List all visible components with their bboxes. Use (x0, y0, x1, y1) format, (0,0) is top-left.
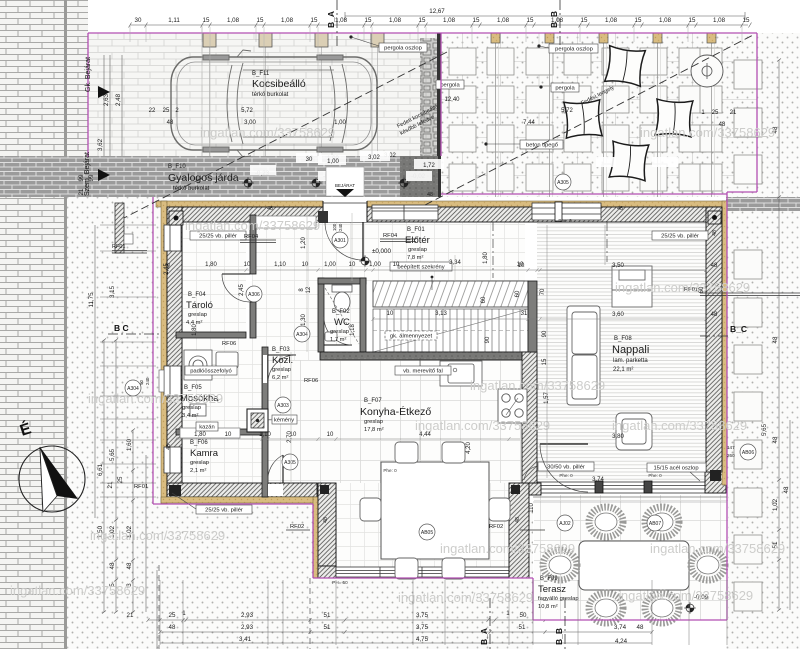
svg-text:48: 48 (166, 263, 172, 269)
svg-text:147: 147 (727, 445, 735, 450)
svg-text:10: 10 (393, 262, 400, 268)
svg-text:10: 10 (244, 262, 251, 268)
svg-text:±0,000: ±0,000 (372, 248, 391, 255)
svg-text:RF04: RF04 (383, 233, 398, 239)
svg-text:260: 260 (727, 453, 735, 458)
svg-text:48: 48 (617, 206, 623, 212)
svg-text:B_B: B_B (554, 628, 564, 645)
svg-text:pergola oszlop: pergola oszlop (384, 46, 422, 52)
svg-text:B_F11: B_F11 (252, 71, 270, 77)
svg-text:21: 21 (730, 110, 737, 116)
svg-text:B_A: B_A (326, 11, 336, 28)
svg-text:60: 60 (699, 286, 705, 293)
svg-text:RF01: RF01 (134, 484, 148, 490)
svg-text:3,4 m²: 3,4 m² (182, 413, 198, 419)
svg-text:48: 48 (267, 206, 273, 212)
svg-text:25: 25 (163, 108, 170, 114)
svg-text:15: 15 (419, 17, 426, 24)
svg-text:1,80: 1,80 (194, 432, 206, 438)
svg-text:21: 21 (107, 481, 114, 488)
svg-text:51: 51 (324, 612, 331, 619)
svg-text:ingatlan.com/33758629: ingatlan.com/33758629 (200, 125, 335, 140)
svg-text:1,10: 1,10 (259, 432, 271, 438)
svg-text:ingatlan.com/33758629: ingatlan.com/33758629 (440, 541, 575, 556)
svg-text:10: 10 (387, 311, 394, 317)
svg-text:48: 48 (637, 624, 644, 631)
svg-text:48: 48 (126, 562, 133, 569)
svg-text:pergola oszlop: pergola oszlop (555, 47, 593, 53)
svg-text:1,11: 1,11 (168, 17, 180, 24)
svg-text:A306: A306 (248, 292, 260, 298)
svg-text:B_F01: B_F01 (407, 227, 425, 233)
svg-text:4,44: 4,44 (419, 432, 431, 438)
svg-text:A303: A303 (277, 403, 289, 409)
svg-text:48: 48 (719, 122, 726, 128)
svg-text:B_B: B_B (549, 11, 559, 28)
svg-text:1,60: 1,60 (126, 438, 133, 451)
svg-text:greslap: greslap (272, 367, 291, 373)
svg-text:ingatlan.com/33758629: ingatlan.com/33758629 (612, 418, 747, 433)
svg-text:AJ02: AJ02 (559, 521, 571, 527)
svg-text:60: 60 (515, 290, 521, 297)
svg-text:1,80: 1,80 (483, 252, 489, 264)
svg-text:48: 48 (109, 562, 116, 569)
svg-text:padlóösszefolyó: padlóösszefolyó (190, 369, 232, 375)
svg-text:30/50 vb. pillér: 30/50 vb. pillér (547, 465, 585, 471)
svg-text:5,72: 5,72 (241, 108, 253, 114)
svg-text:25: 25 (169, 612, 176, 619)
svg-text:B_F03: B_F03 (272, 347, 290, 353)
svg-text:60: 60 (481, 296, 487, 303)
svg-text:RF04: RF04 (244, 234, 259, 240)
svg-text:greslap: greslap (188, 312, 207, 318)
svg-text:ingatlan.com/33758629: ingatlan.com/33758629 (650, 541, 785, 556)
svg-text:1,18: 1,18 (350, 324, 356, 336)
svg-text:gk. álmennyezet: gk. álmennyezet (390, 334, 433, 340)
svg-text:1,08: 1,08 (389, 17, 402, 24)
svg-text:B_C: B_C (730, 324, 747, 334)
svg-text:B_F10: B_F10 (168, 164, 186, 170)
svg-text:ingatlan.com/33758629: ingatlan.com/33758629 (415, 418, 550, 433)
svg-text:pergola: pergola (440, 83, 460, 89)
svg-text:15: 15 (311, 17, 318, 24)
svg-text:kazán: kazán (199, 425, 214, 431)
svg-text:térkő burkolat: térkő burkolat (252, 92, 289, 98)
svg-text:6,2 m²: 6,2 m² (272, 375, 288, 381)
svg-text:RF02: RF02 (290, 524, 304, 530)
svg-text:25/25 vb. pillér: 25/25 vb. pillér (199, 234, 237, 240)
svg-text:48: 48 (427, 192, 433, 198)
svg-text:1,20: 1,20 (301, 237, 307, 249)
svg-text:1,80: 1,80 (192, 324, 198, 336)
svg-text:3,60: 3,60 (612, 312, 624, 318)
svg-text:pergola: pergola (555, 86, 575, 92)
svg-text:1,80: 1,80 (205, 262, 217, 268)
svg-text:Phe: 0: Phe: 0 (648, 473, 662, 478)
svg-text:1,08: 1,08 (659, 17, 672, 24)
svg-text:48: 48 (515, 517, 521, 523)
svg-text:10: 10 (225, 432, 232, 438)
svg-text:25/25 vb. pillér: 25/25 vb. pillér (205, 508, 243, 514)
svg-text:ingatlan.com/33758629: ingatlan.com/33758629 (398, 590, 533, 605)
svg-text:1,08: 1,08 (605, 17, 618, 24)
svg-text:3,75: 3,75 (416, 624, 429, 631)
svg-text:B_F07: B_F07 (364, 398, 382, 404)
svg-text:ingatlan.com/33758629: ingatlan.com/33758629 (185, 218, 320, 233)
svg-text:beton tipegő: beton tipegő (526, 143, 558, 149)
svg-text:48: 48 (711, 312, 718, 318)
svg-text:48: 48 (772, 436, 779, 443)
svg-text:15: 15 (581, 17, 588, 24)
svg-text:30: 30 (306, 157, 313, 163)
svg-text:110: 110 (529, 503, 535, 513)
svg-text:1,7 m²: 1,7 m² (330, 337, 346, 343)
svg-text:Gyalogos járda: Gyalogos járda (168, 172, 239, 184)
svg-text:2,1 m²: 2,1 m² (190, 468, 206, 474)
svg-text:10: 10 (518, 263, 525, 269)
svg-text:3,00: 3,00 (244, 120, 256, 126)
svg-text:ingatlan.com/33758629: ingatlan.com/33758629 (615, 280, 750, 295)
svg-text:A301: A301 (334, 238, 346, 244)
svg-text:25: 25 (712, 110, 719, 116)
svg-text:RF01: RF01 (112, 244, 125, 250)
svg-text:22,1 m²: 22,1 m² (613, 367, 633, 373)
svg-text:AB07: AB07 (649, 521, 661, 527)
svg-text:Phe: 0: Phe: 0 (559, 473, 573, 478)
svg-text:Kamra: Kamra (190, 448, 219, 459)
svg-text:15: 15 (527, 17, 534, 24)
svg-text:4,24: 4,24 (615, 638, 628, 645)
svg-text:B_F04: B_F04 (188, 292, 206, 298)
svg-text:90: 90 (485, 336, 491, 343)
svg-text:Szem. Bejárat: Szem. Bejárat (84, 152, 91, 196)
svg-text:A305: A305 (557, 180, 569, 186)
svg-text:1,30: 1,30 (301, 314, 307, 326)
svg-text:2,63: 2,63 (103, 93, 110, 106)
svg-text:ingatlan.com/33758629: ingatlan.com/33758629 (90, 528, 225, 543)
svg-text:RF02: RF02 (489, 524, 503, 530)
svg-text:15/15 acél oszlop: 15/15 acél oszlop (653, 466, 698, 472)
svg-text:21: 21 (127, 612, 134, 619)
svg-text:B_F06: B_F06 (190, 440, 208, 446)
svg-text:7,8 m²: 7,8 m² (407, 255, 423, 261)
svg-text:12,67: 12,67 (429, 8, 445, 15)
svg-text:A304: A304 (296, 332, 308, 338)
svg-text:15: 15 (473, 17, 480, 24)
svg-text:1,08: 1,08 (281, 17, 294, 24)
svg-text:50: 50 (520, 612, 527, 619)
svg-text:4,75: 4,75 (416, 636, 429, 643)
svg-text:PH= 50: PH= 50 (332, 580, 348, 585)
svg-text:3,74: 3,74 (614, 624, 627, 631)
svg-text:48: 48 (167, 120, 174, 126)
svg-text:vb. merevítő fal: vb. merevítő fal (403, 369, 443, 375)
svg-text:Nappali: Nappali (612, 344, 649, 356)
svg-text:25/25 vb. pillér: 25/25 vb. pillér (661, 234, 699, 240)
svg-text:25: 25 (117, 476, 124, 483)
svg-text:10: 10 (349, 262, 356, 268)
svg-text:3,80: 3,80 (612, 434, 624, 440)
svg-text:12,40: 12,40 (444, 97, 460, 103)
svg-text:48: 48 (323, 517, 329, 523)
svg-text:3,62: 3,62 (97, 138, 104, 151)
svg-text:15: 15 (257, 17, 264, 24)
svg-text:51: 51 (324, 624, 331, 631)
svg-text:15: 15 (635, 17, 642, 24)
svg-text:2,70: 2,70 (287, 431, 293, 443)
svg-text:Konyha-Étkező: Konyha-Étkező (360, 405, 431, 418)
svg-text:48: 48 (712, 230, 718, 236)
svg-text:beépített szekrény: beépített szekrény (397, 265, 444, 271)
svg-text:22: 22 (149, 108, 156, 114)
svg-text:1,08: 1,08 (443, 17, 456, 24)
svg-text:B C: B C (114, 323, 129, 333)
svg-text:AB05: AB05 (421, 530, 433, 536)
svg-text:greslap: greslap (190, 460, 209, 466)
svg-text:51: 51 (519, 624, 526, 631)
svg-text:7,44: 7,44 (523, 120, 535, 126)
svg-text:100: 100 (332, 223, 337, 231)
svg-text:240: 240 (145, 377, 150, 385)
svg-text:17,8 m²: 17,8 m² (364, 427, 384, 433)
svg-text:4,20: 4,20 (466, 442, 472, 454)
svg-text:Előtér: Előtér (405, 235, 430, 246)
svg-text:10: 10 (327, 432, 334, 438)
svg-text:31: 31 (521, 311, 528, 317)
svg-text:B_F09: B_F09 (540, 576, 558, 582)
svg-text:3,75: 3,75 (416, 612, 429, 619)
svg-text:3,41: 3,41 (239, 636, 252, 643)
svg-text:B_F08: B_F08 (614, 336, 632, 342)
svg-text:1,08: 1,08 (227, 17, 240, 24)
svg-text:48: 48 (772, 336, 779, 343)
svg-text:48: 48 (711, 263, 718, 269)
svg-text:2,48: 2,48 (115, 93, 122, 106)
svg-text:1,00: 1,00 (334, 120, 346, 126)
svg-text:Phe: 0: Phe: 0 (383, 468, 397, 473)
svg-text:ingatlan.com/33758629: ingatlan.com/33758629 (640, 125, 775, 140)
svg-text:greslap: greslap (330, 329, 349, 335)
svg-text:ingatlan.com/33758629: ingatlan.com/33758629 (618, 588, 753, 603)
svg-text:B_A: B_A (479, 628, 489, 645)
svg-text:1,08: 1,08 (497, 17, 510, 24)
svg-text:3,02: 3,02 (368, 155, 380, 161)
svg-text:15: 15 (203, 17, 210, 24)
svg-text:AB06: AB06 (742, 450, 754, 456)
svg-text:1,72: 1,72 (423, 163, 435, 169)
svg-text:greslap: greslap (364, 419, 383, 425)
svg-text:48: 48 (169, 624, 176, 631)
svg-text:15: 15 (689, 17, 696, 24)
svg-text:5,72: 5,72 (561, 108, 573, 114)
svg-text:1,08: 1,08 (713, 17, 726, 24)
svg-text:90: 90 (139, 380, 144, 385)
svg-text:1,00: 1,00 (324, 262, 336, 268)
svg-text:2,93: 2,93 (241, 624, 254, 631)
svg-text:1,10: 1,10 (274, 262, 286, 268)
svg-text:3,74: 3,74 (592, 477, 604, 483)
svg-text:2,45: 2,45 (239, 284, 245, 296)
svg-text:A305: A305 (284, 460, 296, 466)
svg-text:5,65: 5,65 (761, 423, 768, 436)
svg-text:Tároló: Tároló (186, 300, 213, 311)
svg-text:10,8 m²: 10,8 m² (538, 604, 558, 610)
svg-text:térkő burkolat: térkő burkolat (173, 186, 210, 192)
svg-text:1,02: 1,02 (772, 498, 779, 511)
svg-text:5,65: 5,65 (109, 448, 116, 461)
svg-text:fagyálló greslap: fagyálló greslap (538, 596, 579, 602)
svg-text:BEJÁRAT: BEJÁRAT (335, 182, 355, 188)
svg-text:RF06: RF06 (222, 341, 236, 347)
svg-text:3,34: 3,34 (449, 260, 461, 266)
svg-text:ingatlan.com/33758629: ingatlan.com/33758629 (470, 378, 605, 393)
svg-text:Phe: 0: Phe: 0 (558, 218, 572, 223)
svg-text:Közl.: Közl. (272, 355, 293, 366)
svg-text:11,75: 11,75 (88, 292, 95, 308)
svg-text:WC: WC (334, 317, 350, 328)
svg-text:3,50: 3,50 (612, 263, 624, 269)
svg-text:15: 15 (743, 17, 750, 24)
svg-text:RF06: RF06 (304, 378, 318, 384)
svg-text:1,00: 1,00 (327, 159, 339, 165)
svg-text:Gk. Bejárat: Gk. Bejárat (85, 57, 92, 92)
svg-text:30: 30 (135, 17, 142, 24)
svg-text:6,61: 6,61 (97, 463, 104, 476)
svg-text:ingatlan.com/33758629: ingatlan.com/33758629 (10, 583, 145, 598)
svg-text:10: 10 (302, 262, 309, 268)
svg-text:2,93: 2,93 (241, 612, 254, 619)
svg-text:48: 48 (166, 444, 172, 450)
svg-text:70: 70 (540, 288, 546, 295)
svg-text:15: 15 (365, 17, 372, 24)
svg-text:48: 48 (783, 486, 790, 493)
svg-text:Kocsibeálló: Kocsibeálló (252, 78, 306, 90)
svg-text:3,15: 3,15 (109, 285, 116, 298)
svg-text:240: 240 (338, 223, 343, 231)
svg-text:3,13: 3,13 (435, 311, 447, 317)
svg-text:greslap: greslap (408, 247, 427, 253)
svg-text:ingatlan.com/33758629: ingatlan.com/33758629 (88, 391, 223, 406)
svg-text:1,00: 1,00 (369, 262, 381, 268)
svg-text:1: 1 (506, 610, 510, 617)
svg-text:lam. parketta: lam. parketta (613, 358, 648, 364)
svg-text:Terasz: Terasz (538, 584, 566, 595)
